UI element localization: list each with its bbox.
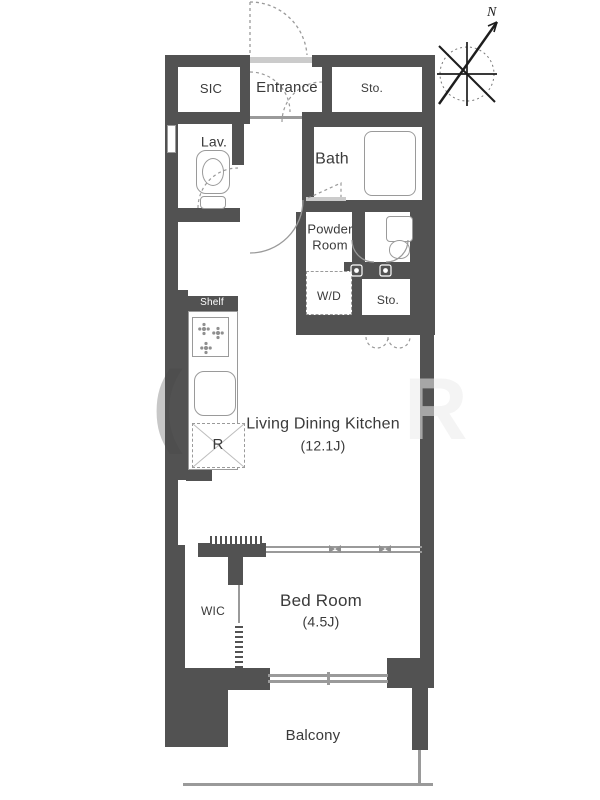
wall-segment bbox=[165, 668, 270, 690]
refrigerator-label: R bbox=[212, 436, 223, 454]
compass-arrowhead bbox=[488, 22, 497, 32]
entrance-door-sill bbox=[250, 57, 312, 63]
wall-segment bbox=[165, 208, 240, 222]
storage-accordion-door bbox=[366, 337, 410, 348]
window-sash-mark bbox=[327, 672, 330, 685]
wall-niche bbox=[167, 125, 176, 153]
room-label-storage-mid: Sto. bbox=[377, 293, 399, 307]
sliding-door-track bbox=[266, 546, 422, 548]
room-label-lavatory: Lav. bbox=[201, 134, 227, 151]
room-size-bedroom: (4.5J) bbox=[303, 614, 340, 631]
wall-segment bbox=[296, 313, 356, 335]
wall-segment bbox=[410, 212, 435, 315]
utility-strip bbox=[344, 262, 412, 279]
wall-segment bbox=[165, 222, 178, 545]
wall-segment bbox=[302, 200, 435, 212]
compass-needle-ne bbox=[439, 22, 497, 104]
compass-circle bbox=[440, 47, 494, 101]
bath-door-sill bbox=[306, 197, 346, 201]
wall-segment bbox=[344, 315, 435, 335]
toilet-bowl bbox=[389, 240, 410, 259]
compass-needle-nw bbox=[439, 46, 495, 102]
partition-wall bbox=[198, 543, 266, 557]
shelf-label: Shelf bbox=[200, 297, 224, 309]
wall-segment bbox=[165, 690, 228, 747]
partition-hatch bbox=[210, 536, 262, 544]
north-label: N bbox=[486, 5, 497, 20]
room-label-balcony: Balcony bbox=[286, 727, 341, 745]
wall-segment bbox=[232, 122, 244, 165]
balcony-edge-line bbox=[418, 750, 421, 785]
wall-segment bbox=[302, 112, 435, 127]
wall-segment bbox=[322, 67, 332, 115]
wic-door-hatch bbox=[235, 623, 243, 668]
room-label-entrance: Entrance bbox=[256, 79, 318, 97]
sliding-door-track bbox=[266, 551, 422, 553]
bathtub bbox=[364, 131, 416, 196]
wall-segment bbox=[420, 335, 434, 665]
room-label-wic: WIC bbox=[201, 604, 225, 618]
toilet-tank bbox=[386, 216, 413, 242]
wall-segment bbox=[312, 55, 435, 67]
room-label-sic: SIC bbox=[200, 81, 222, 97]
compass-rose-icon: N bbox=[423, 2, 523, 122]
stove bbox=[192, 317, 229, 357]
room-label-bath: Bath bbox=[315, 149, 349, 168]
room-label-storage-top: Sto. bbox=[361, 81, 383, 95]
watermark-glyph: R bbox=[404, 358, 468, 460]
kitchen-sink bbox=[194, 371, 236, 416]
pillar bbox=[387, 658, 434, 688]
wall-segment bbox=[302, 122, 314, 200]
room-size-ldk: (12.1J) bbox=[301, 438, 346, 455]
room-label-bedroom: Bed Room bbox=[280, 591, 362, 611]
entrance-door-arc bbox=[250, 2, 307, 55]
entrance-step-line bbox=[250, 116, 302, 119]
room-label-powder-room: Powder Room bbox=[297, 221, 363, 252]
wall-segment bbox=[412, 688, 428, 750]
room-label-washer-dryer: W/D bbox=[317, 289, 341, 303]
wic-door-line bbox=[238, 585, 240, 623]
floorplan: N ( R SIC Entrance Sto. Lav. Bath Powder… bbox=[0, 0, 600, 800]
wall-segment bbox=[178, 290, 188, 480]
room-label-ldk: Living Dining Kitchen bbox=[246, 414, 400, 433]
washbasin-bowl bbox=[202, 158, 224, 186]
washbasin-step bbox=[200, 196, 226, 209]
balcony-railing bbox=[183, 783, 433, 786]
wall-segment bbox=[228, 557, 243, 585]
